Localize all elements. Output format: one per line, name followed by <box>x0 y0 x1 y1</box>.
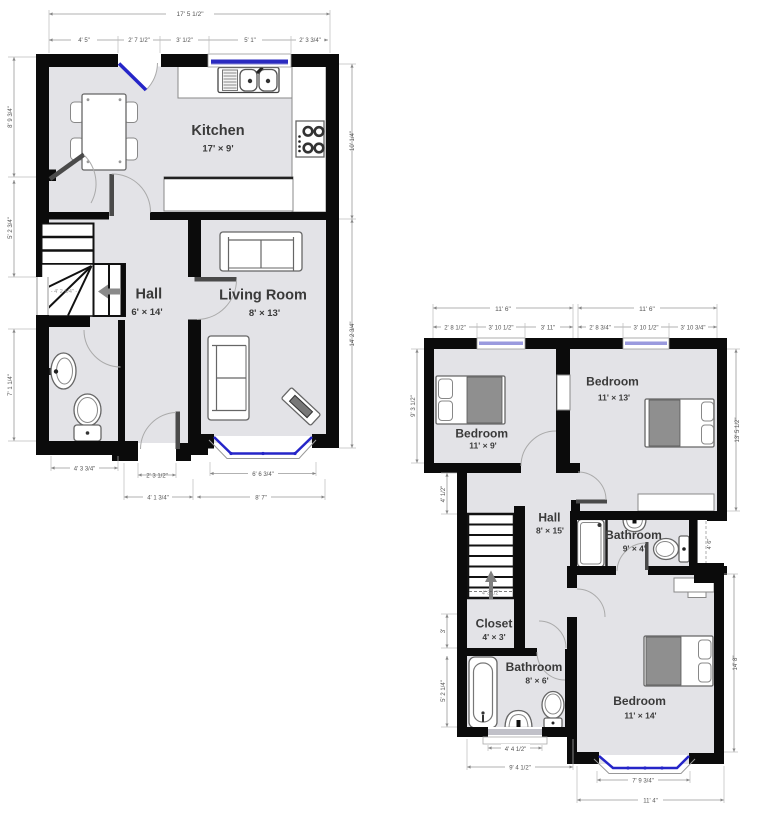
svg-text:2' 7 1/2": 2' 7 1/2" <box>128 38 150 44</box>
svg-text:2' 8 1/2": 2' 8 1/2" <box>444 326 466 332</box>
svg-text:5' 2 3/4": 5' 2 3/4" <box>8 217 14 239</box>
svg-text:8' 9 3/4": 8' 9 3/4" <box>8 106 14 128</box>
svg-text:4' 1 3/4": 4' 1 3/4" <box>147 496 169 502</box>
svg-text:Kitchen: Kitchen <box>191 123 244 139</box>
svg-text:10' 1/4": 10' 1/4" <box>350 131 356 151</box>
svg-text:17' × 9': 17' × 9' <box>202 144 233 155</box>
svg-text:3' 1/2": 3' 1/2" <box>176 38 193 44</box>
svg-text:14' 2 3/4": 14' 2 3/4" <box>350 322 356 347</box>
svg-text:11' 4": 11' 4" <box>643 799 658 805</box>
svg-text:2' 3 3/4": 2' 3 3/4" <box>299 38 321 44</box>
svg-text:4' 3 1/2": 4' 3 1/2" <box>482 591 500 597</box>
svg-text:Closet: Closet <box>476 617 513 631</box>
svg-text:4' 3 3/4": 4' 3 3/4" <box>74 467 96 473</box>
svg-text:Living Room: Living Room <box>219 288 307 304</box>
svg-text:11' × 14': 11' × 14' <box>624 710 656 720</box>
svg-text:Hall: Hall <box>538 511 560 525</box>
svg-text:Bedroom: Bedroom <box>613 694 666 708</box>
svg-text:Bedroom: Bedroom <box>455 426 508 440</box>
svg-text:3' 10 1/2": 3' 10 1/2" <box>489 326 514 332</box>
svg-text:3' 11": 3' 11" <box>541 326 556 332</box>
svg-text:4' 5": 4' 5" <box>78 38 90 44</box>
svg-text:6' × 14': 6' × 14' <box>131 307 162 318</box>
svg-text:11' × 9': 11' × 9' <box>469 441 496 451</box>
svg-text:Bathroom: Bathroom <box>605 528 662 542</box>
svg-text:- 4' 2 1/4" -: - 4' 2 1/4" - <box>51 289 78 295</box>
svg-text:4' 6": 4' 6" <box>707 539 713 550</box>
svg-text:5' 1": 5' 1" <box>244 38 256 44</box>
svg-text:11' 6": 11' 6" <box>495 306 511 313</box>
svg-text:2' 3 1/2": 2' 3 1/2" <box>146 474 168 480</box>
svg-text:7' 9 3/4": 7' 9 3/4" <box>632 779 654 785</box>
svg-text:8' 7": 8' 7" <box>255 496 267 502</box>
svg-text:14' 8": 14' 8" <box>733 656 739 671</box>
svg-text:8' × 15': 8' × 15' <box>536 526 564 536</box>
svg-text:7' 1 1/4": 7' 1 1/4" <box>8 374 14 396</box>
svg-text:Bathroom: Bathroom <box>506 660 563 674</box>
svg-text:8' × 6': 8' × 6' <box>525 676 548 686</box>
svg-text:Hall: Hall <box>136 287 163 303</box>
svg-text:4' × 3': 4' × 3' <box>482 632 505 642</box>
svg-text:17' 5 1/2": 17' 5 1/2" <box>176 11 204 18</box>
svg-text:4' 1/2": 4' 1/2" <box>441 486 447 503</box>
svg-text:5' 2 1/4": 5' 2 1/4" <box>441 680 447 702</box>
svg-text:11' 6": 11' 6" <box>639 306 655 313</box>
svg-text:2' 8 3/4": 2' 8 3/4" <box>589 326 611 332</box>
svg-text:6' 6 3/4": 6' 6 3/4" <box>252 472 274 478</box>
svg-text:9' 4 1/2": 9' 4 1/2" <box>509 766 531 772</box>
svg-text:3' 10 3/4": 3' 10 3/4" <box>681 326 706 332</box>
svg-text:9' 3 1/2": 9' 3 1/2" <box>411 395 417 417</box>
svg-text:3' 10 1/2": 3' 10 1/2" <box>634 326 659 332</box>
svg-text:13' 5 1/2": 13' 5 1/2" <box>735 418 741 443</box>
svg-text:8' × 13': 8' × 13' <box>249 308 280 319</box>
svg-text:9' × 4': 9' × 4' <box>623 544 646 554</box>
svg-text:Bedroom: Bedroom <box>586 375 639 389</box>
svg-text:3': 3' <box>441 629 447 633</box>
svg-text:4' 4 1/2": 4' 4 1/2" <box>505 747 527 753</box>
svg-text:11' × 13': 11' × 13' <box>598 393 630 403</box>
